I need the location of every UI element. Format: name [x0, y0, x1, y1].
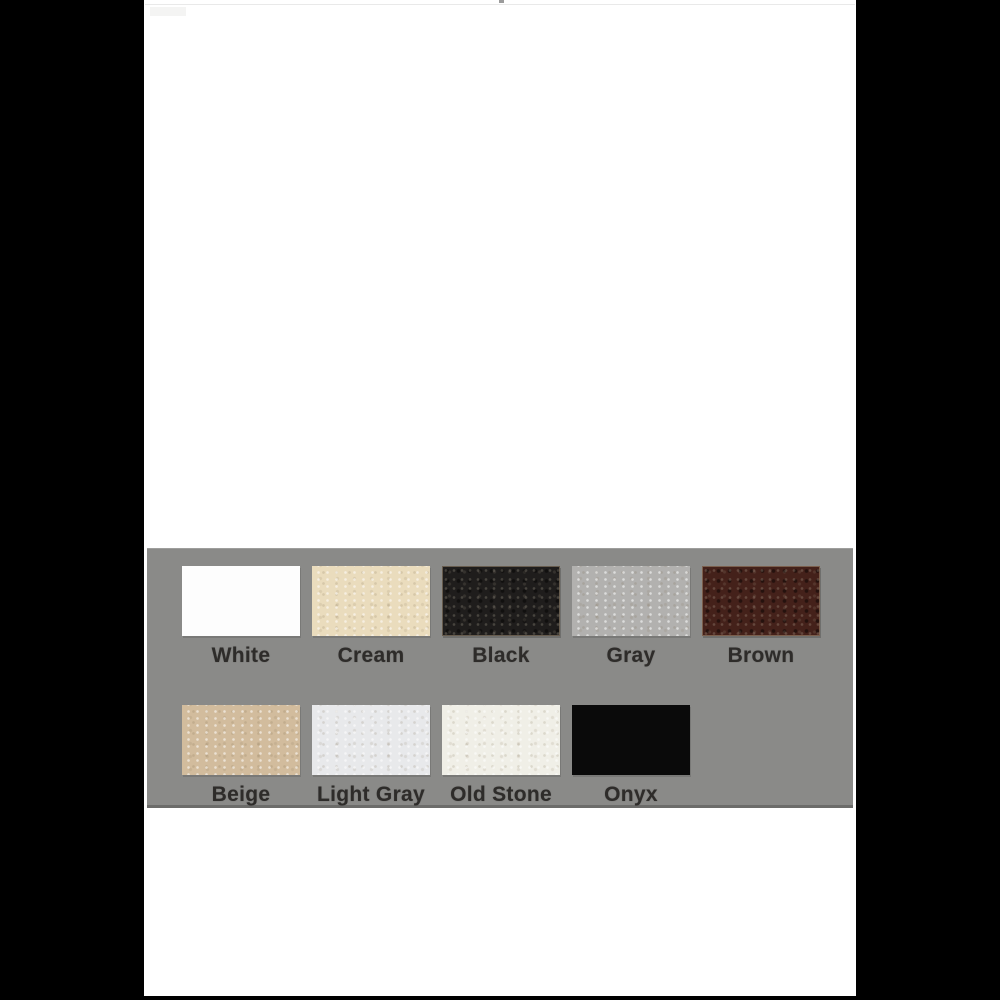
swatch-label-brown: Brown — [728, 644, 795, 668]
swatch-brown[interactable] — [702, 566, 820, 636]
swatch-gray[interactable] — [572, 566, 690, 636]
swatch-cream[interactable] — [312, 566, 430, 636]
swatch-beige[interactable] — [182, 705, 300, 775]
swatch-label-black: Black — [472, 644, 530, 668]
swatch-row-2: Beige Light Gray Old Stone Onyx — [182, 705, 690, 807]
swatch-light-gray[interactable] — [312, 705, 430, 775]
right-pillarbox-bar — [856, 0, 1000, 1000]
color-option-brown: Brown — [702, 566, 820, 668]
bottom-border-strip — [0, 996, 1000, 1000]
color-option-light-gray: Light Gray — [312, 705, 430, 807]
swatch-black[interactable] — [442, 566, 560, 636]
swatch-label-cream: Cream — [338, 644, 405, 668]
color-option-gray: Gray — [572, 566, 690, 668]
top-artifact-smudge — [150, 7, 186, 16]
swatch-label-beige: Beige — [212, 783, 271, 807]
color-options-panel: White Cream Black Gray Brown Beige Light… — [147, 548, 853, 808]
color-option-cream: Cream — [312, 566, 430, 668]
swatch-label-old-stone: Old Stone — [450, 783, 552, 807]
left-pillarbox-bar — [0, 0, 144, 1000]
color-option-onyx: Onyx — [572, 705, 690, 807]
swatch-label-gray: Gray — [606, 644, 655, 668]
top-artifact-line — [145, 4, 855, 5]
swatch-label-light-gray: Light Gray — [317, 783, 425, 807]
swatch-label-onyx: Onyx — [604, 783, 658, 807]
swatch-old-stone[interactable] — [442, 705, 560, 775]
color-option-white: White — [182, 566, 300, 668]
swatch-white[interactable] — [182, 566, 300, 636]
color-option-beige: Beige — [182, 705, 300, 807]
color-option-old-stone: Old Stone — [442, 705, 560, 807]
color-option-black: Black — [442, 566, 560, 668]
swatch-onyx[interactable] — [572, 705, 690, 775]
top-artifact-tick — [499, 0, 504, 3]
swatch-row-1: White Cream Black Gray Brown — [182, 566, 820, 668]
swatch-label-white: White — [212, 644, 271, 668]
